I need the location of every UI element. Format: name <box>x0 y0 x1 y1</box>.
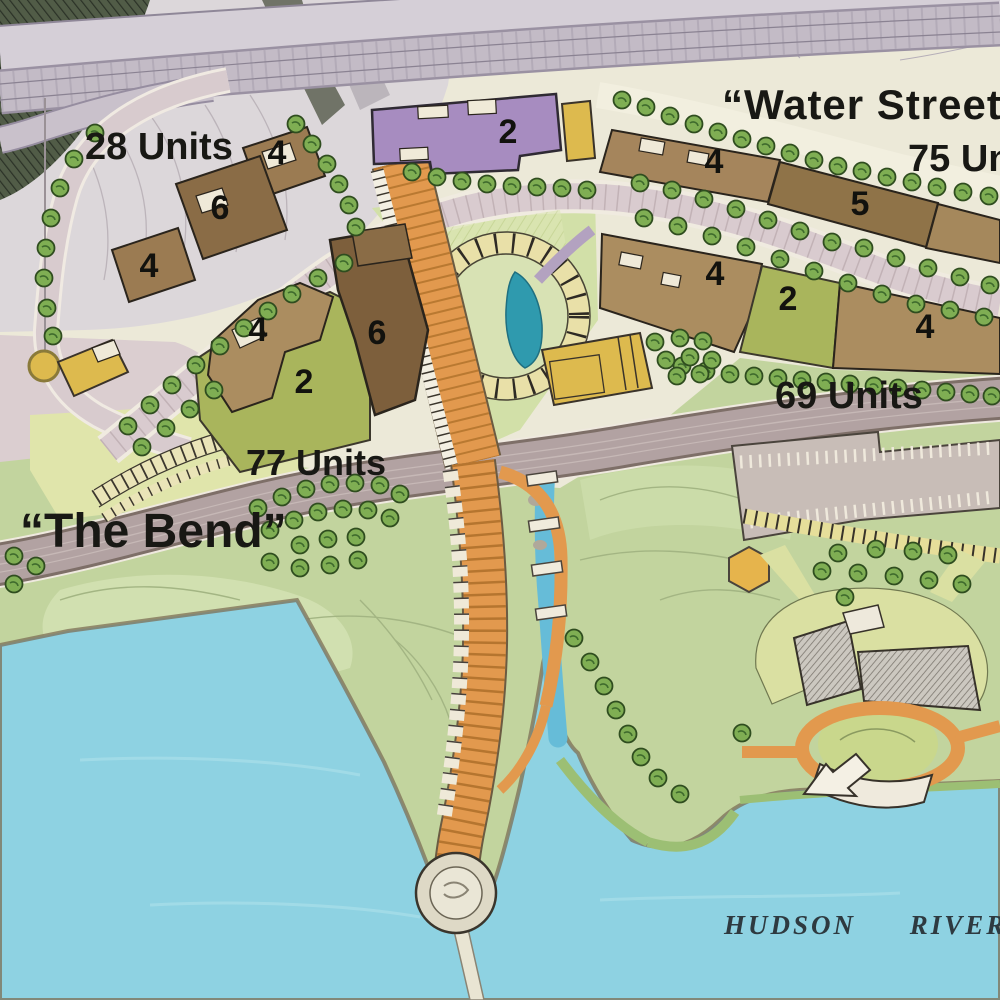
label-28-units: 28 Units <box>85 128 233 166</box>
building-number-row2-west: 4 <box>706 257 725 291</box>
building-number-block-tan: 4 <box>249 313 268 347</box>
building-number-row2-mid: 2 <box>779 282 798 316</box>
site-plan-page: “Water Street” 28 Units 75 Units 69 Unit… <box>0 0 1000 1000</box>
building-number-nw-top: 4 <box>268 136 287 170</box>
label-75-units: 75 Units <box>908 140 1000 178</box>
building-number-row2-east: 4 <box>916 310 935 344</box>
label-hudson-river: HUDSON RIVER <box>724 912 1000 939</box>
stream-rock <box>533 540 547 550</box>
label-water-street: “Water Street” <box>722 84 1000 126</box>
building-number-nw-low: 4 <box>140 249 159 283</box>
label-77-units: 77 Units <box>246 445 386 481</box>
label-69-units: 69 Units <box>775 377 923 415</box>
building-number-block-brown: 6 <box>368 316 387 350</box>
building-number-row1-west: 4 <box>705 145 724 179</box>
building-number-nw-mid: 6 <box>211 191 230 225</box>
building-number-row1-east: 5 <box>851 187 870 221</box>
hexagon-pavilion <box>729 547 769 592</box>
building-number-block-green: 2 <box>295 365 314 399</box>
building-number-purple: 2 <box>499 115 518 149</box>
label-the-bend: “The Bend” <box>20 508 287 556</box>
